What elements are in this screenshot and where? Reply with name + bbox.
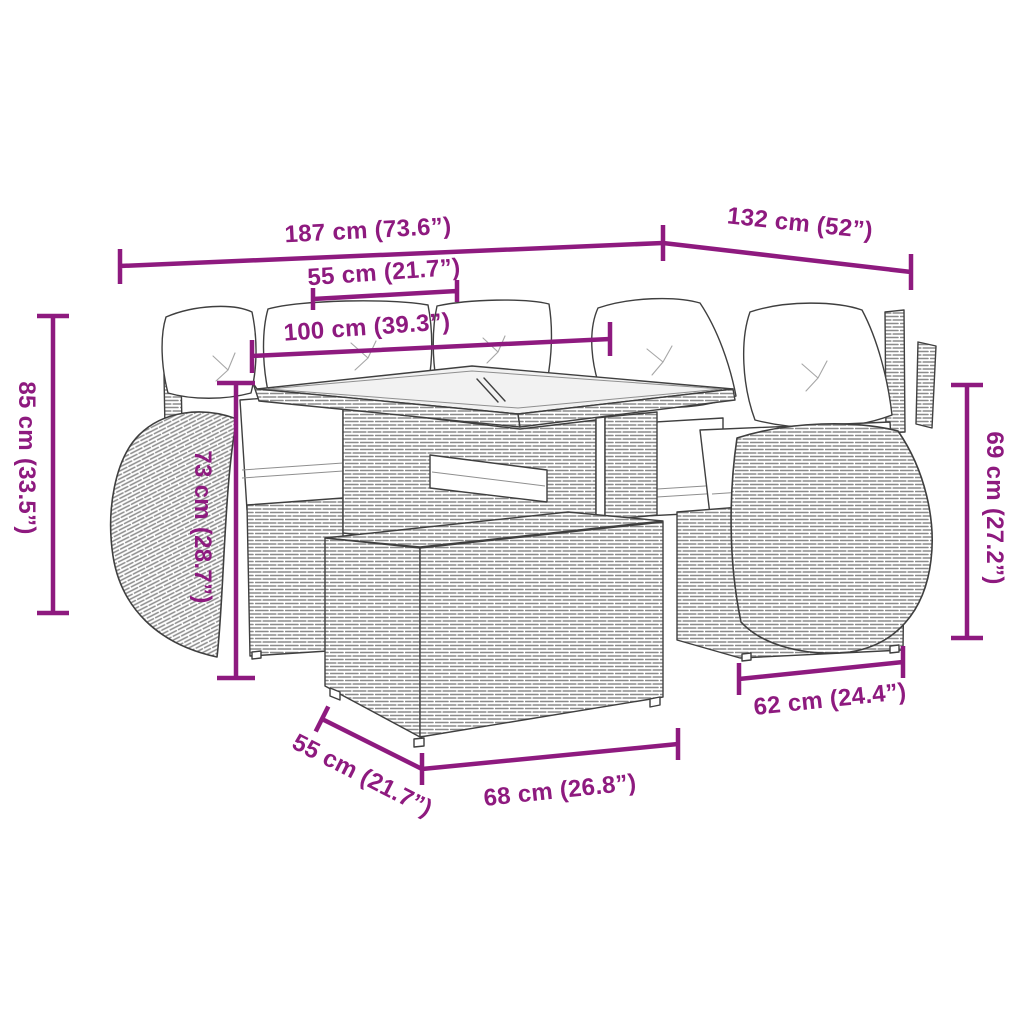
dim-line-side-width	[663, 243, 911, 290]
dim-line-total-height	[37, 316, 69, 613]
table-body-right	[605, 412, 657, 520]
product-dimension-diagram: 187 cm (73.6”) 132 cm (52”) 55 cm (21.7”…	[0, 0, 1024, 1024]
ottoman-left-face	[325, 538, 420, 737]
right-arm-panel	[731, 424, 932, 653]
left-arm-panel	[111, 412, 237, 657]
dim-table-height-label: 73 cm (28.7”)	[188, 450, 216, 603]
dim-line-ottoman-width	[422, 728, 678, 785]
dim-arm-height-label: 69 cm (27.2”)	[980, 431, 1008, 584]
ottoman-sketch	[325, 512, 663, 747]
back-cushion	[744, 303, 892, 428]
ottoman-front-face	[420, 522, 663, 737]
dim-line-arm-height	[951, 385, 983, 638]
seat-cushion	[240, 392, 343, 510]
dim-total-height-label: 85 cm (33.5”)	[12, 381, 40, 534]
furniture-sketch	[0, 0, 1024, 1024]
